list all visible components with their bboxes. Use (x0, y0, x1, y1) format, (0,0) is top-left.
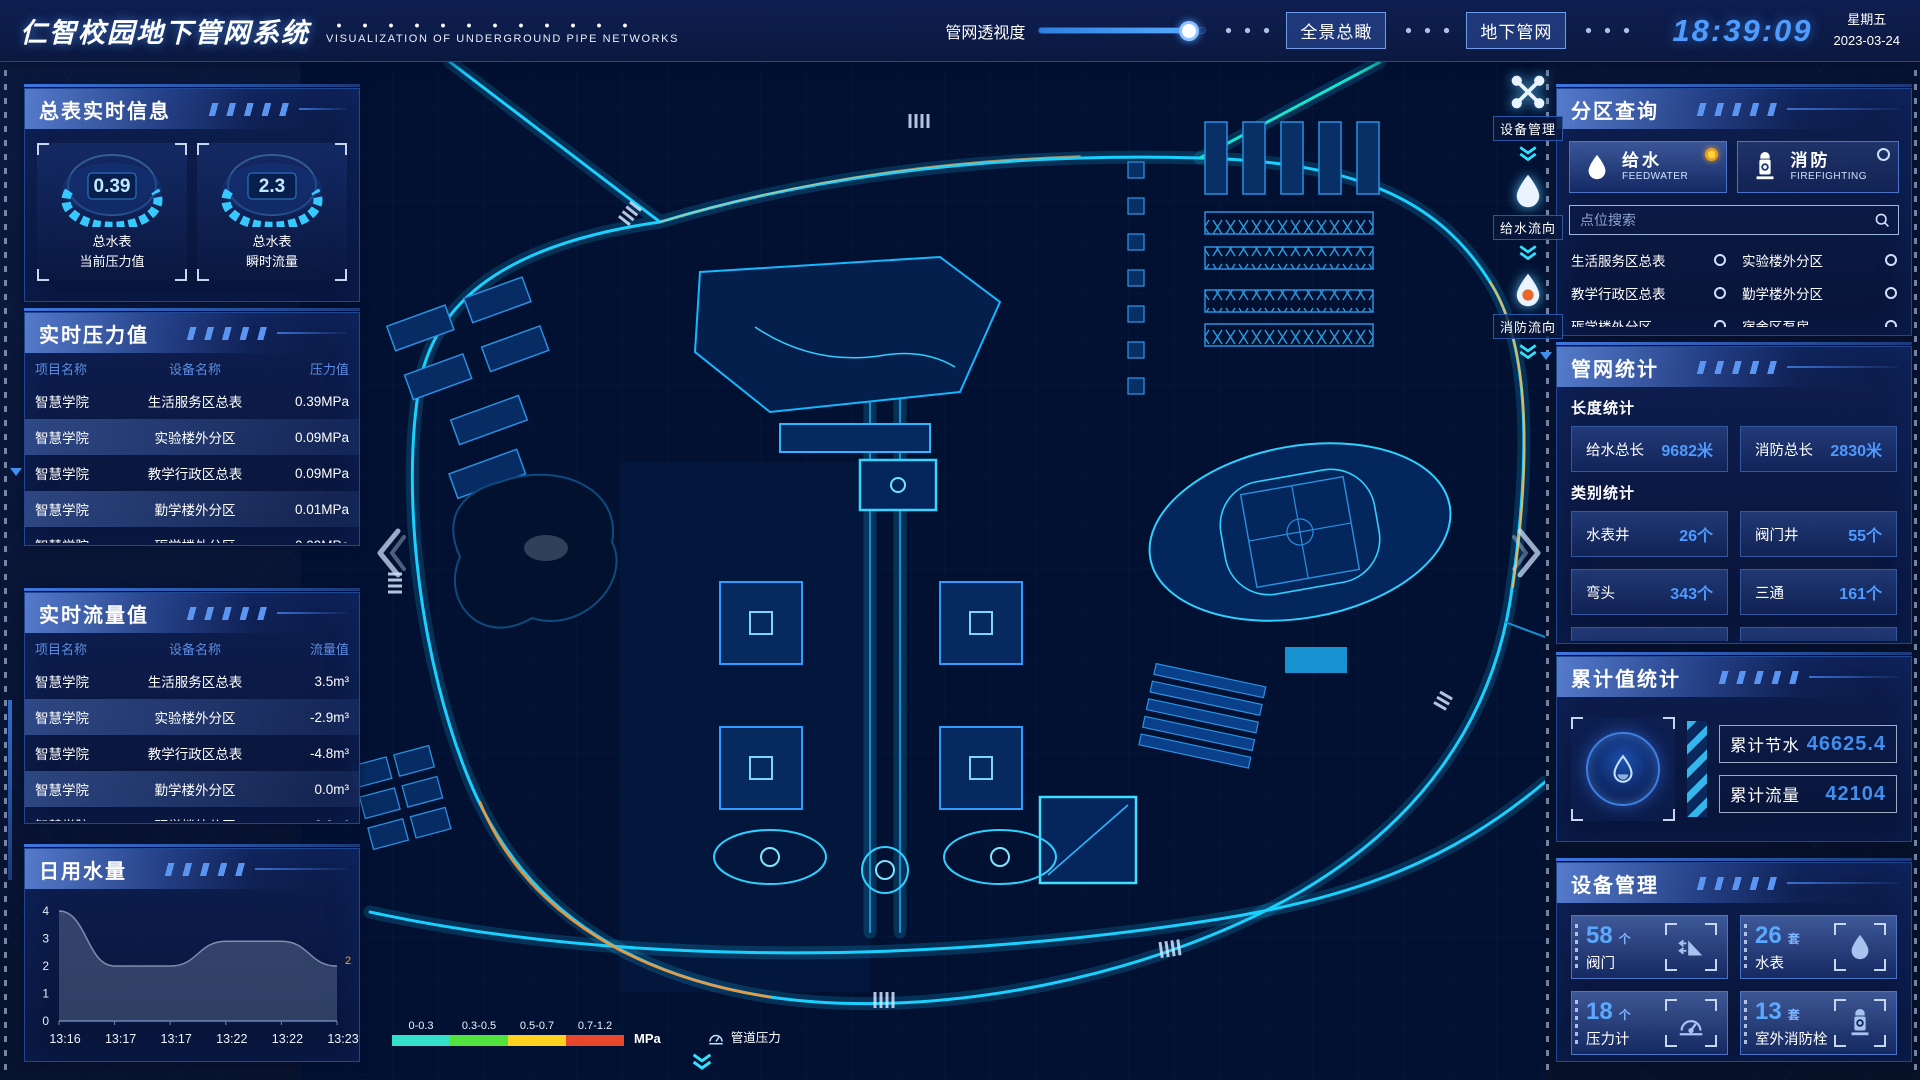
stat-box: 弯头343个 (1571, 569, 1728, 615)
radio-icon[interactable] (1877, 148, 1890, 161)
svg-text:2: 2 (345, 955, 351, 967)
panel-title: 设备管理 (1571, 869, 1659, 898)
table-cell: 智慧学院 (35, 427, 127, 447)
table-header: 项目名称设备名称压力值 (25, 353, 359, 383)
weekday: 星期五 (1834, 10, 1901, 30)
toggle-feedwater[interactable]: 给水FEEDWATER (1569, 141, 1727, 193)
svg-text:13:16: 13:16 (49, 1032, 80, 1046)
clock: 18:39:09 (1672, 13, 1812, 49)
clipped-stat-row (1557, 627, 1911, 641)
date: 2023-03-24 (1834, 31, 1901, 51)
slash-decoration (1693, 103, 1779, 116)
panel-title: 日用水量 (39, 855, 127, 884)
zone-item[interactable]: 生活服务区总表 (1571, 243, 1726, 276)
transparency-slider[interactable] (1038, 27, 1206, 34)
stat-box: 三通161个 (1740, 569, 1897, 615)
gauge-card-flow: 2.3 总水表瞬时流量 (197, 143, 347, 281)
slider-thumb[interactable] (1179, 21, 1199, 41)
dot-decoration (1579, 27, 1633, 34)
radio-icon[interactable] (1714, 320, 1726, 328)
radio-icon[interactable] (1885, 287, 1897, 299)
tick-decoration (1914, 70, 1917, 1070)
panel-cumulative: 累计值统计 累计节水46625.4累计流量42104 (1556, 656, 1912, 842)
table-cell: 教学行政区总表 (127, 463, 263, 483)
gauge-card-pressure: 0.39 总水表当前压力值 (37, 143, 187, 281)
table-cell: 2.3m³ (263, 818, 349, 822)
device-card[interactable]: 26套水表 (1740, 915, 1897, 979)
pressure-legend: 0-0.30.3-0.50.5-0.70.7-1.2 MPa 管道压力 (392, 1020, 781, 1046)
total-row: 累计节水46625.4 (1719, 725, 1897, 763)
table-cell: 实验楼外分区 (127, 427, 263, 447)
dashboard: 设备管理给水流向消防流向 0-0.30.3-0.50.5-0.70.7-1.2 … (0, 0, 1920, 1080)
table-cell: -2.9m³ (263, 710, 349, 725)
table-cell: 智慧学院 (35, 743, 127, 763)
daily-usage-chart: 0123413:1613:1713:1713:2213:2213:232 (25, 893, 361, 1061)
table-cell: 智慧学院 (35, 463, 127, 483)
table-row[interactable]: 智慧学院实验楼外分区0.09MPa (25, 419, 359, 455)
svg-text:2: 2 (42, 959, 49, 973)
table-row[interactable]: 智慧学院教学行政区总表0.09MPa (25, 455, 359, 491)
table-row[interactable]: 智慧学院勤学楼外分区0.01MPa (25, 491, 359, 527)
table-cell: 智慧学院 (35, 391, 127, 411)
toggle-firefighting[interactable]: 消防FIREFIGHTING (1737, 141, 1899, 193)
table-cell: 生活服务区总表 (127, 391, 263, 411)
zone-item[interactable]: 砺学楼外分区 (1571, 309, 1726, 327)
dot-decoration (1399, 27, 1453, 34)
table-cell: -4.8m³ (263, 746, 349, 761)
svg-text:13:17: 13:17 (161, 1032, 192, 1046)
table-cell: 智慧学院 (35, 815, 127, 821)
device-card[interactable]: 58个阀门 (1571, 915, 1728, 979)
table-row[interactable]: 智慧学院教学行政区总表-4.8m³ (25, 735, 359, 771)
tick-decoration (4, 70, 7, 1070)
app-title: 仁智校园地下管网系统 (20, 11, 310, 50)
panel-meter-realtime: 总表实时信息 0.39 总水表当前压力值 2.3 (24, 88, 360, 302)
table-cell: 智慧学院 (35, 499, 127, 519)
scrollbar-decoration[interactable] (8, 700, 12, 880)
table-cell: 智慧学院 (35, 779, 127, 799)
svg-text:13:22: 13:22 (272, 1032, 303, 1046)
search-box (1569, 205, 1899, 235)
legend-pipe-pressure: 管道压力 (707, 1027, 781, 1046)
search-icon[interactable] (1874, 212, 1890, 228)
water-meter-icon (1834, 923, 1886, 971)
table-cell: 教学行政区总表 (127, 743, 263, 763)
panel-title: 实时流量值 (39, 599, 149, 628)
device-card[interactable]: 18个压力计 (1571, 991, 1728, 1055)
slash-decoration (205, 103, 291, 116)
table-row[interactable]: 智慧学院勤学楼外分区0.0m³ (25, 771, 359, 807)
zone-item[interactable]: 勤学楼外分区 (1742, 276, 1897, 309)
gauge-icon: 0.39 (47, 149, 177, 227)
panel-title: 实时压力值 (39, 319, 149, 348)
svg-text:13:22: 13:22 (216, 1032, 247, 1046)
svg-text:4: 4 (42, 904, 49, 918)
table-row[interactable]: 智慧学院砺学楼外分区0.09MPa (25, 527, 359, 543)
chevron-down-icon (1517, 145, 1539, 163)
table-header: 项目名称设备名称流量值 (25, 633, 359, 663)
pressure-meter-icon (707, 1028, 725, 1046)
table-row[interactable]: 智慧学院实验楼外分区-2.9m³ (25, 699, 359, 735)
water-drop-badge (1571, 717, 1675, 821)
table-cell: 砺学楼外分区 (127, 535, 263, 543)
zone-item[interactable]: 宿舍区泵房 (1742, 309, 1897, 327)
fire-droplet-icon (1508, 270, 1548, 310)
stripe-decoration (1687, 721, 1707, 817)
table-cell: 0.09MPa (263, 466, 349, 481)
table-cell: 智慧学院 (35, 671, 127, 691)
search-input[interactable] (1578, 211, 1874, 229)
table-cell: 智慧学院 (35, 535, 127, 543)
table-row[interactable]: 智慧学院生活服务区总表0.39MPa (25, 383, 359, 419)
map-tool[interactable]: 消防流向 (1493, 270, 1563, 361)
table-cell: 0.39MPa (263, 394, 349, 409)
table-cell: 勤学楼外分区 (127, 779, 263, 799)
length-stats-label: 长度统计 (1557, 387, 1911, 426)
chevron-down-icon (690, 1052, 714, 1072)
slash-decoration (183, 607, 269, 620)
slash-decoration (161, 863, 247, 876)
stat-box: 水表井26个 (1571, 511, 1728, 557)
map-arrow-right[interactable] (1512, 525, 1546, 581)
radio-icon[interactable] (1714, 254, 1726, 266)
app-subtitle: VISUALIZATION OF UNDERGROUND PIPE NETWOR… (326, 33, 679, 45)
radio-icon[interactable] (1885, 254, 1897, 266)
legend-segment: 0.5-0.7 (508, 1020, 566, 1046)
gauge-icon: 2.3 (207, 149, 337, 227)
underground-network-button[interactable]: 地下管网 (1466, 12, 1566, 49)
panel-zone-query: 分区查询 给水FEEDWATER 消防FIREFIGHTING 生活服务区总表实… (1556, 88, 1912, 336)
radio-icon[interactable] (1705, 148, 1718, 161)
map-arrow-left[interactable] (372, 525, 406, 581)
droplet-icon (1606, 752, 1640, 786)
table-cell: 0.09MPa (263, 430, 349, 445)
overview-button[interactable]: 全景总瞰 (1286, 12, 1386, 49)
brand: 仁智校园地下管网系统 VISUALIZATION OF UNDERGROUND … (20, 11, 679, 50)
radio-icon[interactable] (1885, 320, 1897, 328)
svg-text:13:17: 13:17 (105, 1032, 136, 1046)
slash-decoration (1715, 671, 1801, 684)
table-cell: 实验楼外分区 (127, 707, 263, 727)
chevron-down-icon (1517, 244, 1539, 262)
svg-text:2.3: 2.3 (259, 176, 285, 197)
table-row[interactable]: 智慧学院生活服务区总表3.5m³ (25, 663, 359, 699)
svg-text:3: 3 (42, 932, 49, 946)
legend-segment: 0.7-1.2 (566, 1020, 624, 1046)
dot-decoration (326, 22, 636, 29)
svg-text:0: 0 (42, 1014, 49, 1028)
table-cell: 0.09MPa (263, 538, 349, 544)
valve-icon (1665, 923, 1717, 971)
svg-text:1: 1 (42, 987, 49, 1001)
table-cell: 0.01MPa (263, 502, 349, 517)
stat-box: 消防总长2830米 (1740, 426, 1897, 472)
table-cell: 0.0m³ (263, 782, 349, 797)
stat-box: 阀门井55个 (1740, 511, 1897, 557)
scroll-arrow-icon[interactable] (10, 468, 22, 476)
panel-realtime-pressure: 实时压力值 项目名称设备名称压力值 智慧学院生活服务区总表0.39MPa智慧学院… (24, 312, 360, 546)
slash-decoration (1693, 877, 1779, 890)
total-row: 累计流量42104 (1719, 775, 1897, 813)
map-tool[interactable]: 设备管理 (1493, 72, 1563, 163)
legend-segment: 0-0.3 (392, 1020, 450, 1046)
table-cell: 生活服务区总表 (127, 671, 263, 691)
legend-segment: 0.3-0.5 (450, 1020, 508, 1046)
wrench-icon (1508, 72, 1548, 112)
top-header: 仁智校园地下管网系统 VISUALIZATION OF UNDERGROUND … (0, 0, 1920, 62)
pressure-gauge-icon (1665, 999, 1717, 1047)
dot-decoration (1219, 27, 1273, 34)
map-tool-column: 设备管理给水流向消防流向 (1468, 72, 1588, 367)
droplet-icon (1508, 171, 1548, 211)
stat-box: 给水总长9682米 (1571, 426, 1728, 472)
device-card[interactable]: 13套室外消防栓 (1740, 991, 1897, 1055)
hydrant-icon (1750, 152, 1780, 182)
legend-unit: MPa (634, 1031, 661, 1046)
table-row[interactable]: 智慧学院砺学楼外分区2.3m³ (25, 807, 359, 821)
panel-realtime-flow: 实时流量值 项目名称设备名称流量值 智慧学院生活服务区总表3.5m³智慧学院实验… (24, 592, 360, 824)
chevron-down-icon (1517, 343, 1539, 361)
svg-text:0.39: 0.39 (94, 176, 131, 197)
panel-device-management: 设备管理 58个阀门26套水表18个压力计13套室外消防栓 (1556, 862, 1912, 1062)
map-tool[interactable]: 给水流向 (1493, 171, 1563, 262)
panel-daily-usage: 日用水量 0123413:1613:1713:1713:2213:2213:23… (24, 848, 360, 1062)
hydrant-icon (1834, 999, 1886, 1047)
zone-item[interactable]: 教学行政区总表 (1571, 276, 1726, 309)
table-cell: 勤学楼外分区 (127, 499, 263, 519)
zone-item[interactable]: 实验楼外分区 (1742, 243, 1897, 276)
panel-title: 总表实时信息 (39, 95, 171, 124)
transparency-label: 管网透视度 (945, 19, 1025, 43)
table-cell: 智慧学院 (35, 707, 127, 727)
svg-text:13:23: 13:23 (327, 1032, 358, 1046)
slash-decoration (1693, 361, 1779, 374)
table-cell: 砺学楼外分区 (127, 815, 263, 821)
panel-title: 累计值统计 (1571, 663, 1681, 692)
panel-network-stats: 管网统计 长度统计 给水总长9682米消防总长2830米 类别统计 水表井26个… (1556, 346, 1912, 644)
type-stats-label: 类别统计 (1557, 472, 1911, 511)
slash-decoration (183, 327, 269, 340)
table-cell: 3.5m³ (263, 674, 349, 689)
campus-map[interactable] (300, 62, 1545, 1080)
radio-icon[interactable] (1714, 287, 1726, 299)
